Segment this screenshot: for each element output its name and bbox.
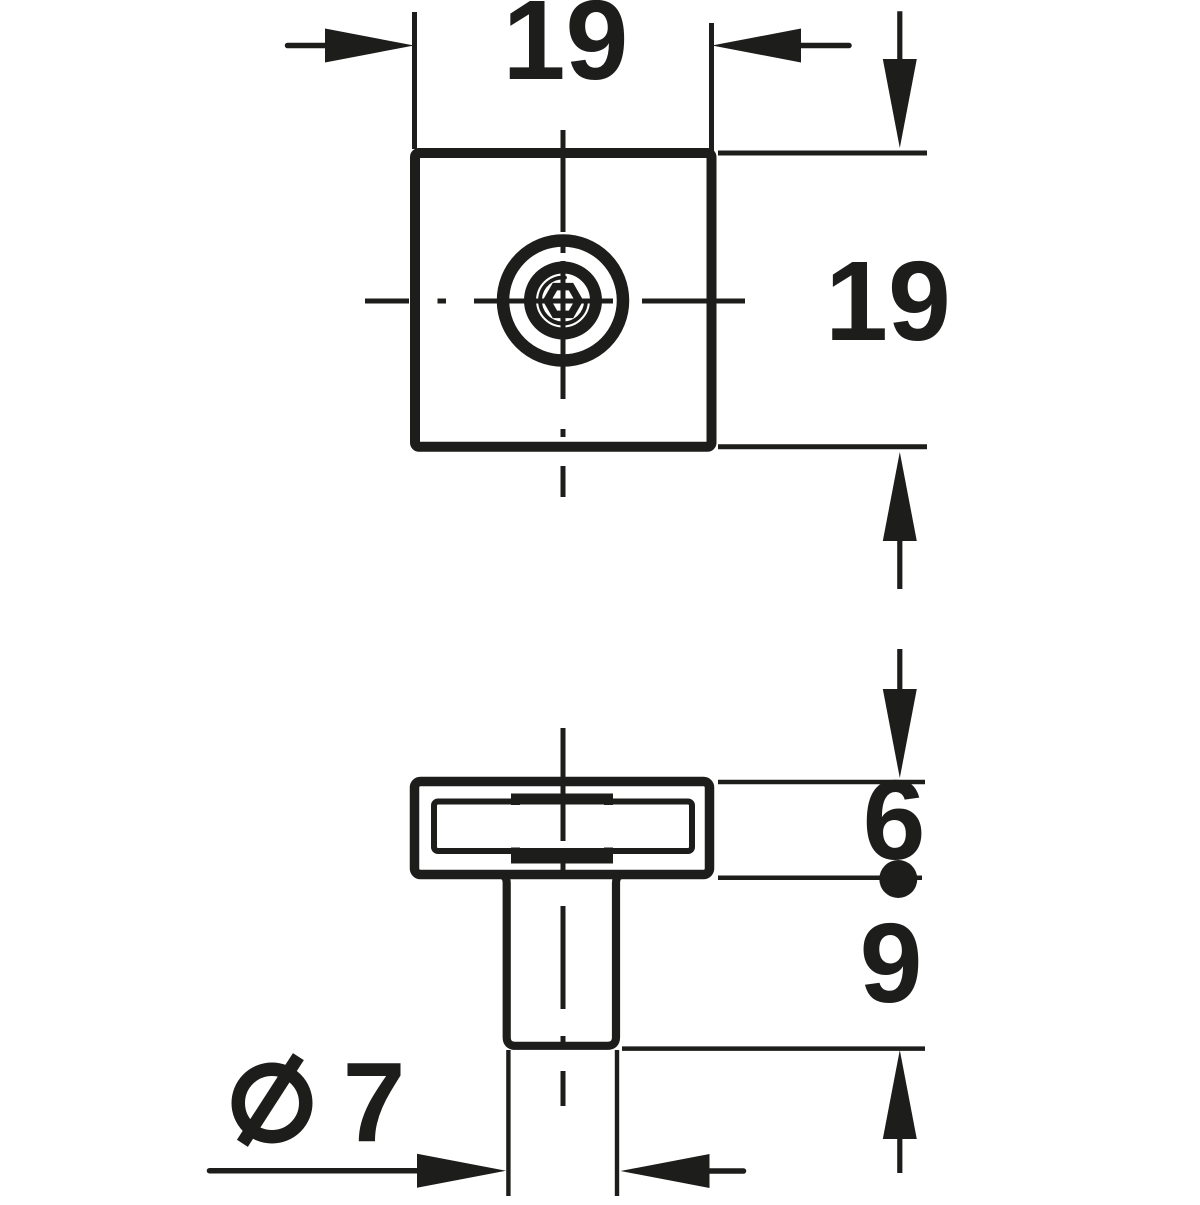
svg-text:19: 19 (825, 238, 951, 364)
svg-text:19: 19 (503, 0, 629, 103)
svg-text:6: 6 (863, 757, 926, 883)
svg-text:7: 7 (343, 1039, 406, 1165)
svg-text:9: 9 (860, 900, 923, 1026)
